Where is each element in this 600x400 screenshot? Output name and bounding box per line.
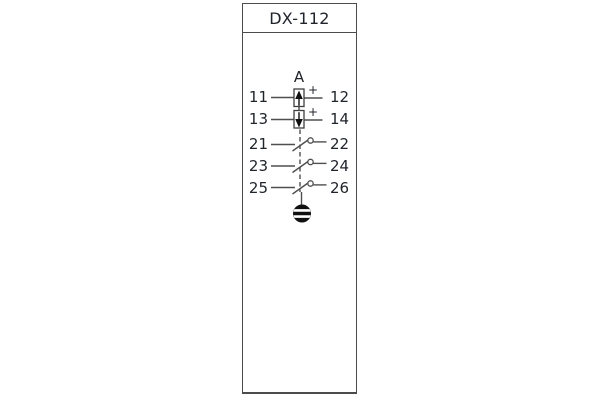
polarity-plus-sign: + [306, 106, 320, 119]
terminal-label-21: 21 [244, 135, 268, 153]
device-title: DX-112 [269, 9, 330, 28]
device-frame: DX-112 [242, 3, 357, 394]
terminal-label-26: 26 [330, 179, 354, 197]
terminal-label-23: 23 [244, 157, 268, 175]
terminal-label-11: 11 [244, 88, 268, 106]
terminal-label-22: 22 [330, 135, 354, 153]
polarity-plus-sign: + [306, 84, 320, 97]
terminal-label-14: 14 [330, 110, 354, 128]
device-header: DX-112 [243, 4, 356, 33]
terminal-label-12: 12 [330, 88, 354, 106]
terminal-label-25: 25 [244, 179, 268, 197]
terminal-label-13: 13 [244, 110, 268, 128]
diagram-canvas: DX-112 [0, 0, 600, 400]
terminal-label-24: 24 [330, 157, 354, 175]
